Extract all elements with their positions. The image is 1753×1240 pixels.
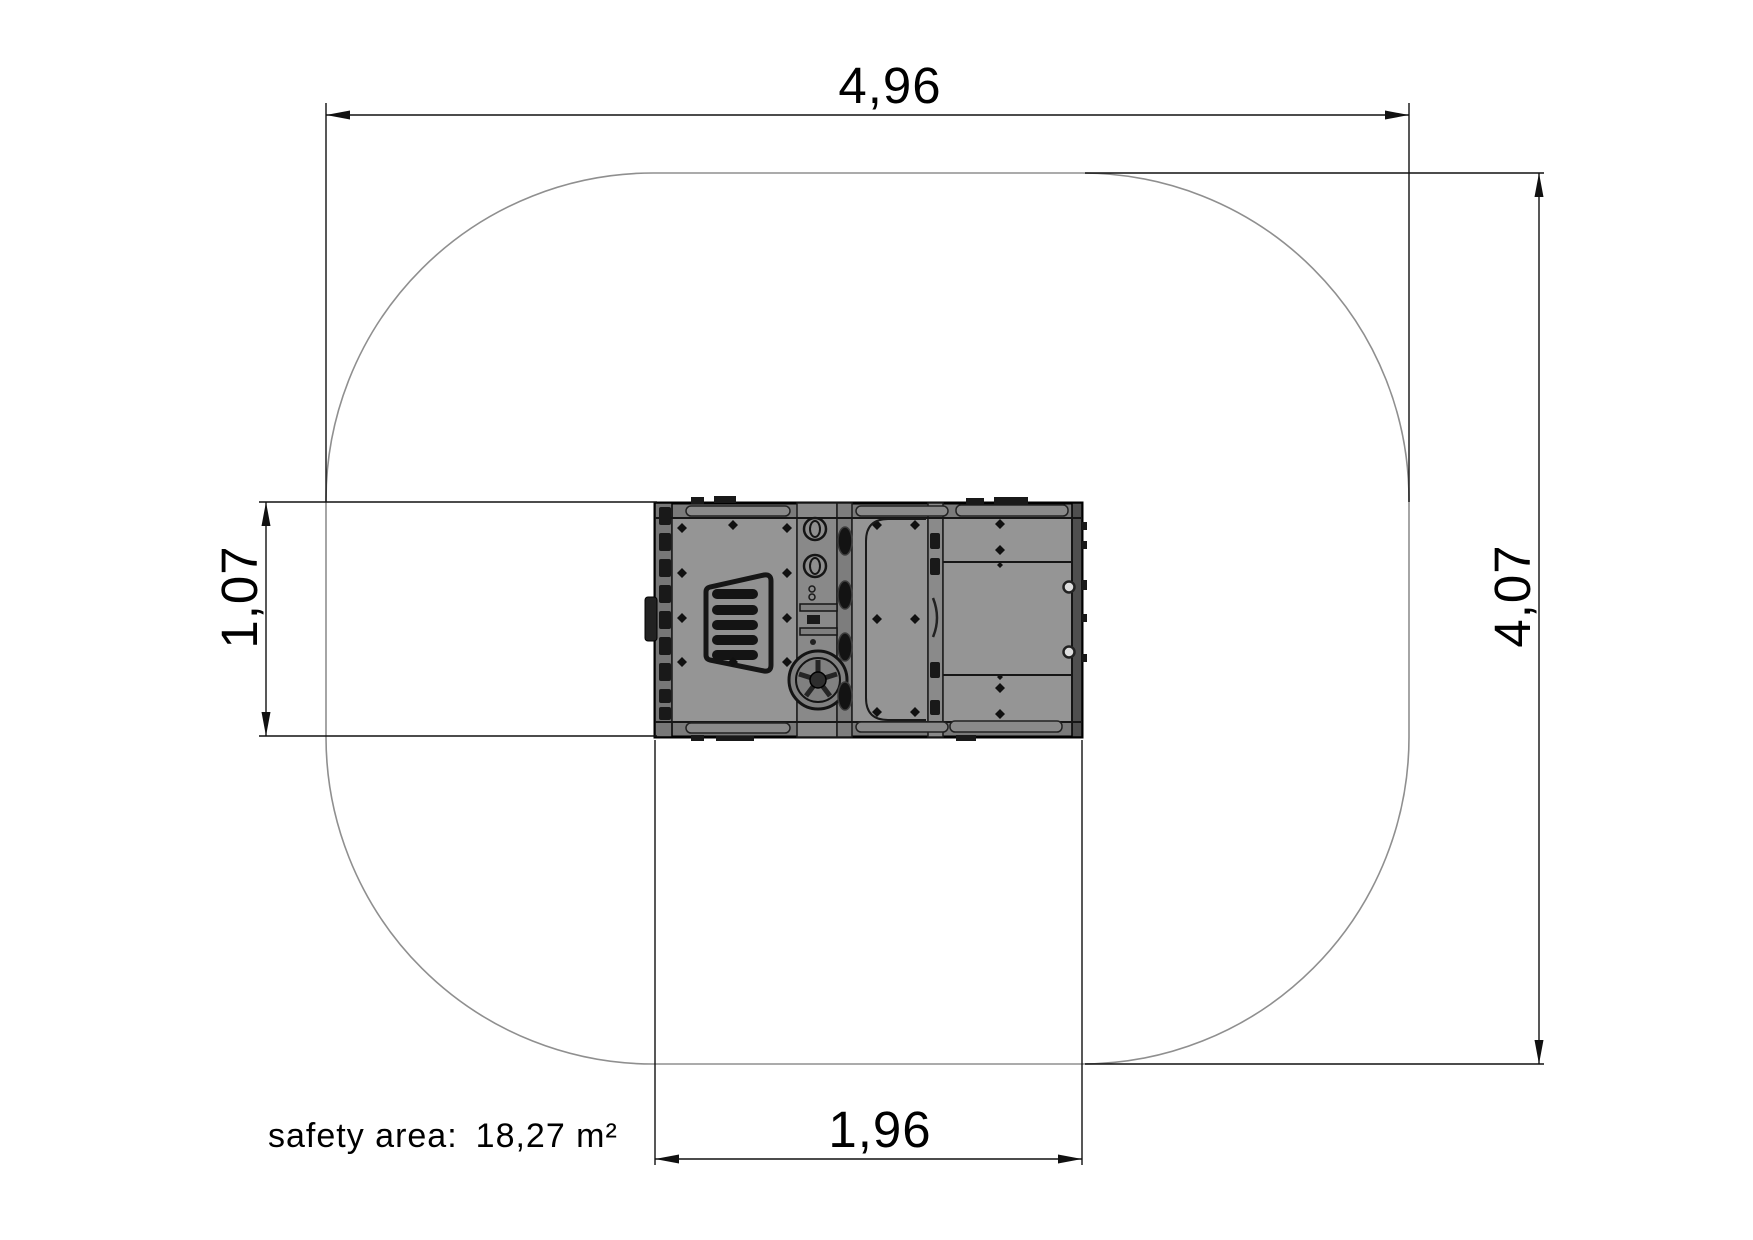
dimension-arrow (1058, 1155, 1082, 1164)
safety-area-label: safety area:18,27 m² (268, 1117, 618, 1155)
dimension-arrow (1385, 111, 1409, 120)
dimension-equipment-height: 1,07 (211, 502, 657, 736)
drawing-svg: 4,96 4,07 1,07 1,96 safety area:18,27 m² (0, 0, 1753, 1240)
edge-screw (1064, 582, 1075, 593)
right-panel (943, 518, 1072, 722)
left-handle (645, 597, 657, 641)
dimension-value-overall-width: 4,96 (838, 57, 941, 114)
safety-area-value: 18,27 m² (476, 1117, 618, 1155)
dimension-arrow (262, 502, 271, 526)
safety-area-label-text: safety area: (268, 1117, 458, 1155)
dimension-arrow (1535, 1040, 1544, 1064)
dimension-value-equipment-width: 1,96 (828, 1101, 931, 1158)
right-edge-band (1072, 503, 1082, 737)
dimension-equipment-width: 1,96 (655, 740, 1082, 1165)
dimension-arrow (326, 111, 350, 120)
dimension-arrow (262, 712, 271, 736)
edge-screw (1064, 647, 1075, 658)
equipment-top-view (645, 496, 1087, 741)
dimension-value-equipment-height: 1,07 (211, 545, 268, 648)
dimension-value-overall-height: 4,07 (1484, 544, 1541, 647)
dimension-overall-width: 4,96 (326, 57, 1409, 502)
technical-drawing-page: 4,96 4,07 1,07 1,96 safety area:18,27 m² (0, 0, 1753, 1240)
dimension-arrow (1535, 173, 1544, 197)
dimension-arrow (655, 1155, 679, 1164)
dimension-overall-height: 4,07 (1085, 173, 1544, 1064)
